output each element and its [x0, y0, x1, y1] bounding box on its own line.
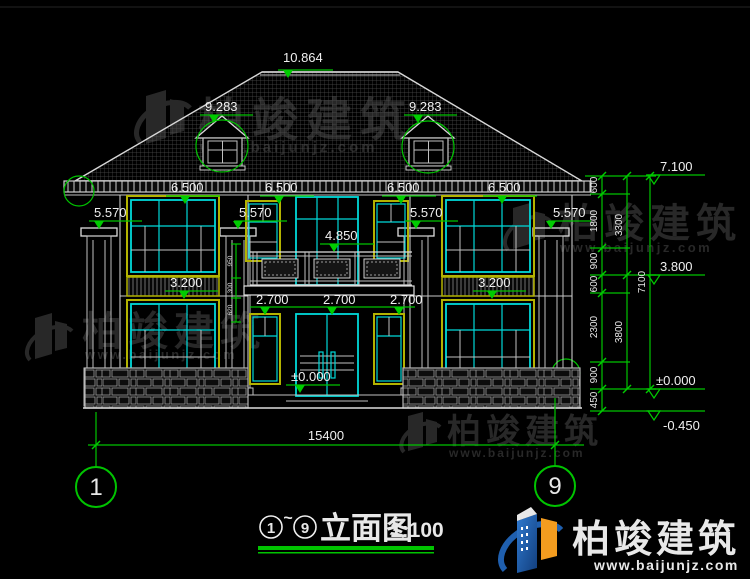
cad-elevation-drawing: 柏竣建筑 www.baijunjz.com 柏竣建筑 www.baijunjz.…: [0, 0, 750, 579]
dim-3800: 3800: [614, 320, 625, 343]
watermark-url: www.baijunjz.com: [448, 446, 585, 460]
title-grid-to: 9: [301, 520, 309, 537]
elev-head1-1: 2.700: [256, 292, 289, 307]
elev-head2-1: 6.500: [171, 180, 204, 195]
window-2f-left: [127, 196, 219, 276]
brand-building-orange: [541, 518, 557, 560]
title-underline-thick: [258, 546, 434, 550]
stone-base-left: [85, 368, 248, 408]
elev-eave: 7.100: [660, 159, 693, 174]
railing-dim-1: 950: [227, 255, 234, 266]
dim-600a: 600: [589, 176, 600, 193]
elev-floor2: 3.800: [660, 259, 693, 274]
dim-900a: 900: [589, 252, 600, 269]
elev-head1-3: 2.700: [390, 292, 423, 307]
drawing-title: 1 ~ 9 立面图 1:100: [258, 510, 444, 554]
watermark-url: www.baijunjz.com: [559, 240, 712, 255]
elev-cap-1: 5.570: [94, 205, 127, 220]
elev-band-right: 3.200: [478, 275, 511, 290]
dim-7100: 7100: [637, 270, 648, 293]
dim-2300: 2300: [589, 315, 600, 338]
elev-cap-4: 5.570: [553, 205, 586, 220]
elev-cap-3: 5.570: [410, 205, 443, 220]
brand-building-blue: [517, 514, 537, 573]
brand-url: www.baijunjz.com: [593, 557, 739, 573]
elev-head1-2: 2.700: [323, 292, 356, 307]
elev-dormer-right: 9.283: [409, 99, 442, 114]
railing-panels: [262, 259, 400, 278]
elev-band-left: 3.200: [170, 275, 203, 290]
brand-cn: 柏竣建筑: [572, 519, 740, 561]
elev-cap-2: 5.570: [239, 205, 272, 220]
dim-3300: 3300: [614, 213, 625, 236]
right-dimension-chains: 600 1800 900 600 2300 900 450 3300 3800 …: [585, 159, 705, 433]
elev-zero-right: ±0.000: [656, 373, 696, 388]
elev-head2-4: 6.500: [488, 180, 521, 195]
title-scale: 1:100: [390, 519, 444, 542]
grid-label-9: 9: [548, 473, 561, 500]
dim-15400: 15400: [308, 428, 344, 443]
title-grid-from: 1: [267, 520, 275, 537]
railing-dim-2: 300: [227, 282, 234, 293]
dim-450: 450: [589, 391, 600, 408]
elev-ridge: 10.864: [283, 50, 323, 65]
elev-neg: -0.450: [663, 418, 700, 433]
dim-1800: 1800: [589, 209, 600, 232]
title-underline-thin: [258, 552, 434, 554]
watermark-left: 柏竣建筑 www.baijunjz.com: [27, 310, 266, 362]
stone-base-right: [403, 368, 580, 408]
railing-dim-3: 620: [227, 304, 234, 315]
brand-logo: 柏竣建筑 www.baijunjz.com: [501, 507, 740, 573]
watermark-bottom: 柏竣建筑 www.baijunjz.com: [401, 412, 603, 460]
dim-900b: 900: [589, 366, 600, 383]
title-tilde: ~: [283, 510, 292, 527]
dim-600b: 600: [589, 275, 600, 292]
elev-head2-3: 6.500: [387, 180, 420, 195]
window-1f-center-right-narrow: [374, 314, 404, 384]
elev-dormer-left: 9.283: [205, 99, 238, 114]
elev-balcony: 4.850: [325, 228, 358, 243]
elev-zero-door: ±0.000: [291, 369, 331, 384]
grid-label-1: 1: [89, 474, 102, 501]
elev-head2-2: 6.500: [265, 180, 298, 195]
